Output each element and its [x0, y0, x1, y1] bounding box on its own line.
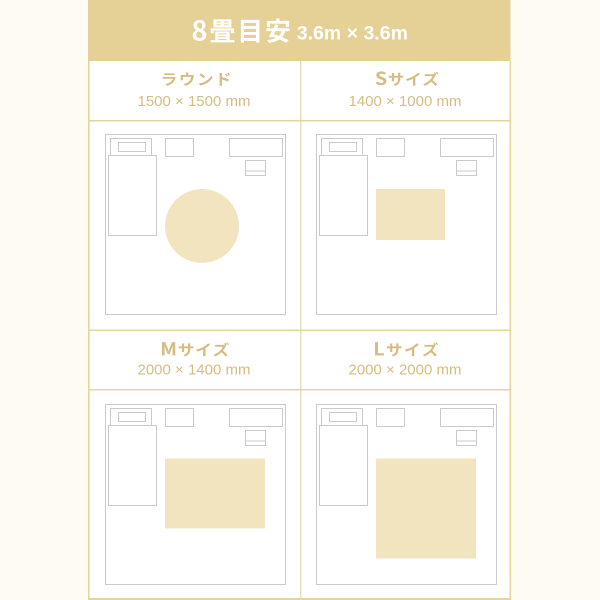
svg-text:3.6m × 3.6m: 3.6m × 3.6m: [297, 22, 408, 44]
svg-text:1500 × 1500 mm: 1500 × 1500 mm: [138, 93, 251, 110]
svg-text:2000 × 2000 mm: 2000 × 2000 mm: [349, 362, 462, 379]
svg-text:2000 × 1400 mm: 2000 × 1400 mm: [138, 362, 251, 379]
svg-text:1400 × 1000 mm: 1400 × 1000 mm: [349, 93, 462, 110]
